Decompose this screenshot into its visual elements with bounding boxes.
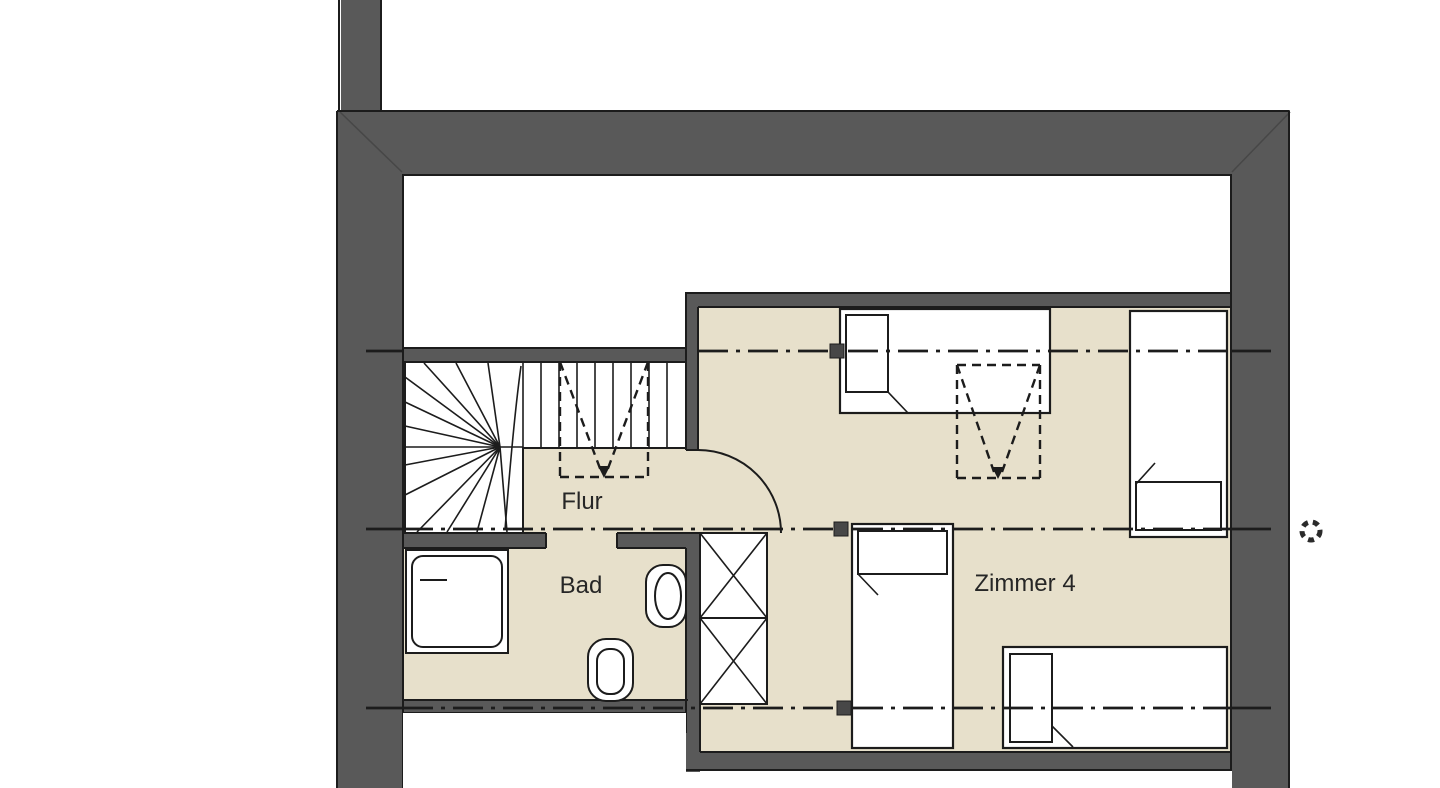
wall-zimmer4-top bbox=[686, 293, 1232, 307]
bed-top bbox=[840, 309, 1050, 413]
wall-right bbox=[1232, 174, 1290, 788]
shower bbox=[406, 550, 508, 653]
zimmer4-door-opening-floor bbox=[686, 450, 700, 533]
wall-stair-top bbox=[402, 348, 686, 362]
wall-flur-bad-left bbox=[402, 533, 546, 548]
wall-top bbox=[338, 110, 1290, 174]
bed-left bbox=[852, 524, 953, 748]
wardrobe-shaft bbox=[700, 533, 767, 704]
wall-top-stub bbox=[341, 0, 380, 112]
survey-marker-icon bbox=[1302, 522, 1320, 540]
floor-plan-svg: Flur Bad Zimmer 4 bbox=[0, 0, 1440, 788]
bad-door-opening-floor bbox=[546, 533, 617, 548]
wall-stub-door bbox=[686, 293, 698, 451]
wall-bad-zimmer4 bbox=[686, 533, 700, 753]
wall-bad-bottom bbox=[402, 700, 688, 713]
section-marker-icon bbox=[837, 701, 851, 715]
room-label-zimmer4: Zimmer 4 bbox=[974, 570, 1075, 597]
section-marker-icon bbox=[834, 522, 848, 536]
floor-plan-canvas: Flur Bad Zimmer 4 bbox=[0, 0, 1440, 788]
wall-zimmer4-bottom bbox=[655, 752, 1290, 771]
washbasin bbox=[646, 565, 686, 627]
wall-left bbox=[338, 110, 402, 788]
section-marker-icon bbox=[830, 344, 844, 358]
bed-bottom bbox=[1003, 647, 1227, 748]
toilet bbox=[588, 639, 633, 701]
room-label-bad: Bad bbox=[560, 572, 603, 599]
bottom-room-strip bbox=[700, 771, 1231, 788]
room-label-flur: Flur bbox=[561, 488, 602, 515]
lower-room bbox=[403, 713, 686, 788]
bed-right bbox=[1130, 311, 1227, 537]
